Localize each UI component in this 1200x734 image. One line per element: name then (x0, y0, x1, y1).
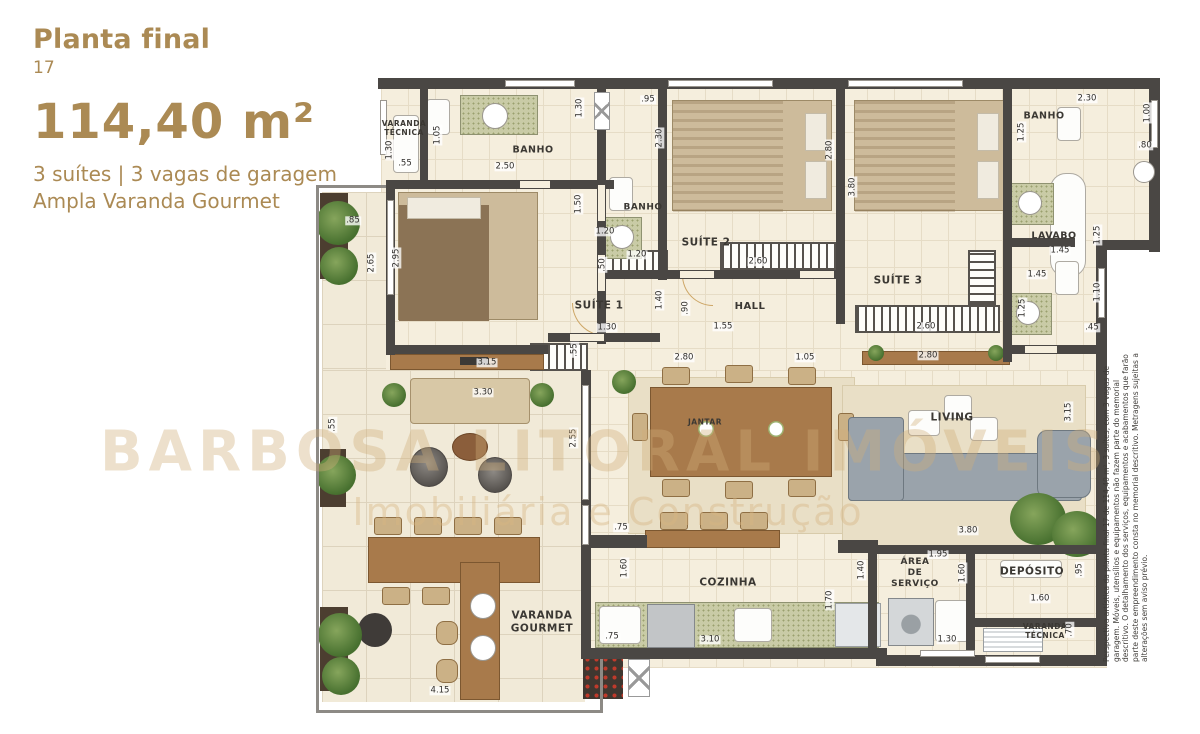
washing-machine (888, 598, 934, 646)
dimension-label: 2.65 (367, 253, 376, 274)
breakfast-bar (645, 530, 780, 548)
dimension-label: 1.45 (1027, 270, 1048, 279)
room-label-suite-1: SUÍTE 1 (575, 300, 624, 313)
plant (612, 370, 636, 394)
room-label-deposito: DEPÓSITO (1000, 566, 1064, 579)
door-opening (800, 271, 834, 278)
dimension-label: 3.15 (1064, 402, 1073, 423)
sofa-chaise (848, 417, 904, 501)
balcony-sofa (410, 378, 530, 424)
side-table (452, 433, 488, 461)
room-label-varanda-gourmet: VARANDA GOURMET (511, 609, 573, 634)
dining-chair (788, 367, 816, 385)
window (848, 80, 963, 87)
dining-chair (662, 479, 690, 497)
dimension-label: 1.05 (795, 353, 816, 362)
room-label-banho-suite2: BANHO (623, 203, 662, 214)
room-label-cozinha: COZINHA (699, 577, 756, 590)
sliding-door (582, 385, 589, 500)
dimension-label: 1.30 (385, 140, 394, 161)
room-label-suite-2: SUÍTE 2 (682, 237, 731, 250)
bar-chair (700, 512, 728, 530)
features-line2: Ampla Varanda Gourmet (33, 189, 337, 213)
dimension-label: 2.55 (569, 428, 578, 449)
dimension-label: .95 (1075, 562, 1084, 578)
dining-table (650, 387, 832, 477)
page-title: Planta final (33, 24, 337, 55)
dimension-label: 2.80 (674, 353, 695, 362)
room-label-lavabo: LAVABO (1031, 230, 1076, 241)
bed-pillow (977, 161, 999, 199)
stove (647, 604, 695, 648)
kitchen-sink (734, 608, 772, 642)
plant (318, 613, 362, 657)
dimension-label: .95 (640, 95, 656, 104)
balcony-railing (600, 658, 603, 713)
bar-chair (374, 517, 402, 535)
window (668, 80, 773, 87)
wall (836, 78, 845, 324)
dimension-label: .55 (397, 159, 413, 168)
features-line1: 3 suítes | 3 vagas de garagem (33, 162, 337, 186)
dimension-label: 1.60 (1030, 594, 1051, 603)
bar-stool (436, 621, 458, 645)
round-table (358, 613, 392, 647)
dimension-label: 1.70 (825, 590, 834, 611)
wall (548, 333, 660, 342)
plant (382, 383, 406, 407)
dimension-label: 1.00 (1143, 103, 1152, 124)
dimension-label: 1.50 (574, 194, 583, 215)
plant (322, 657, 360, 695)
dimension-label: 1.20 (595, 227, 616, 236)
dimension-label: 1.20 (627, 250, 648, 259)
dimension-label: .75 (613, 523, 629, 532)
dimension-label: 1.45 (1050, 246, 1071, 255)
bed-pillow (977, 113, 999, 151)
sink-icon (470, 593, 496, 619)
dimension-label: 1.25 (1093, 225, 1102, 246)
dimension-label: 1.30 (937, 635, 958, 644)
balcony-railing (316, 185, 319, 713)
room-label-varanda-tecnica-bottom: VARANDA TÉCNICA (1023, 622, 1068, 640)
dimension-label: .50 (598, 257, 607, 273)
dimension-label: 3.10 (700, 635, 721, 644)
dimension-label: 2.30 (655, 128, 664, 149)
bed-suite1 (398, 192, 538, 320)
dimension-label: 2.60 (916, 322, 937, 331)
sink-icon (1018, 191, 1042, 215)
dining-chair (725, 481, 753, 499)
round-chair (478, 457, 512, 493)
bar-chair (494, 517, 522, 535)
service-hatch (628, 659, 650, 697)
door-opening (1025, 346, 1057, 353)
plant (868, 345, 884, 361)
bar-stool (436, 659, 458, 683)
bed-pillow (805, 161, 827, 199)
dimension-label: 1.30 (575, 98, 584, 119)
dimension-label: 2.80 (825, 140, 834, 161)
dimension-label: 1.55 (713, 322, 734, 331)
dining-chair (788, 479, 816, 497)
flower-decor (768, 421, 784, 437)
plant (530, 383, 554, 407)
dimension-label: 1.30 (597, 323, 618, 332)
room-label-suite-3: SUÍTE 3 (874, 275, 923, 288)
dimension-label: 1.95 (928, 550, 949, 559)
bar-chair (414, 517, 442, 535)
round-chair (410, 447, 448, 487)
dimension-label: 3.80 (958, 526, 979, 535)
bed-suite2 (672, 100, 832, 211)
dimension-label: 1.05 (433, 125, 442, 146)
window (985, 656, 1040, 663)
wall (868, 545, 1107, 554)
dimension-label: .55 (328, 417, 337, 433)
dimension-label: .45 (1084, 323, 1100, 332)
floor-plan: VARANDA TÉCNICABANHOBANHOSUÍTE 2SUÍTE 3S… (310, 65, 1170, 725)
closet (968, 250, 996, 305)
shower-box (594, 92, 610, 130)
dimension-label: .55 (570, 342, 579, 358)
sink-icon (1133, 161, 1155, 183)
wall (581, 648, 887, 659)
dimension-label: 2.60 (748, 257, 769, 266)
plant (988, 345, 1004, 361)
bed-suite3 (854, 100, 1004, 211)
room-label-banho-suite3: BANHO (1023, 110, 1064, 121)
page: Planta final 17 114,40 m² 3 suítes | 3 v… (0, 0, 1200, 734)
dimension-label: 2.80 (918, 351, 939, 360)
dimension-label: 2.50 (495, 162, 516, 171)
dimension-label: 1.40 (655, 290, 664, 311)
room-label-varanda-tecnica-top: VARANDA TÉCNICA (382, 119, 427, 137)
gourmet-counter (368, 537, 540, 583)
flower-box (583, 655, 623, 699)
dimension-label: .70 (1065, 622, 1074, 638)
bar-chair (660, 512, 688, 530)
legal-disclaimer: Perspectiva artística da planta final 17… (1102, 350, 1150, 662)
dimension-label: 3.30 (473, 388, 494, 397)
wall (386, 345, 548, 354)
wall (868, 545, 877, 659)
wall (838, 540, 878, 553)
sink-icon (482, 103, 508, 129)
toilet-icon (1055, 261, 1079, 295)
dimension-label: .90 (681, 300, 690, 316)
bed-blanket (855, 101, 955, 212)
bar-chair (382, 587, 410, 605)
dining-chair (662, 367, 690, 385)
balcony-railing (316, 710, 603, 713)
bed-blanket (399, 205, 489, 321)
dimension-label: 1.10 (1093, 282, 1102, 303)
dining-chair (725, 365, 753, 383)
dimension-label: 3.80 (848, 177, 857, 198)
closet (720, 242, 838, 270)
gourmet-counter (460, 562, 500, 700)
room-label-living: LIVING (930, 412, 973, 425)
armchair (1037, 430, 1091, 498)
plan-number: 17 (33, 58, 337, 78)
balcony-railing (316, 185, 394, 188)
dimension-label: .85 (345, 216, 361, 225)
door-opening (570, 334, 604, 341)
wall (1003, 78, 1012, 362)
area-value: 114,40 m² (33, 94, 337, 150)
door-opening (520, 181, 550, 188)
dimension-label: 1.25 (1017, 122, 1026, 143)
window (920, 650, 975, 657)
door-opening (680, 271, 714, 278)
dimension-label: 4.15 (430, 686, 451, 695)
room-label-jantar: JANTAR (688, 418, 722, 427)
dimension-label: 1.60 (620, 558, 629, 579)
sliding-door (582, 505, 589, 545)
dimension-label: 1.40 (857, 560, 866, 581)
wall (581, 535, 647, 548)
dimension-label: 1.60 (958, 563, 967, 584)
bed-blanket (673, 101, 783, 212)
dining-chair (632, 413, 648, 441)
door-opening (598, 185, 605, 221)
dimension-label: 1.25 (1018, 298, 1027, 319)
dimension-label: .80 (1137, 141, 1153, 150)
header: Planta final 17 114,40 m² 3 suítes | 3 v… (33, 24, 337, 213)
dimension-label: .75 (604, 632, 620, 641)
dimension-label: 2.95 (392, 248, 401, 269)
coffee-table (970, 417, 998, 441)
bar-chair (422, 587, 450, 605)
room-label-area-de-servico: ÁREA DE SERVIÇO (891, 557, 939, 589)
plant (316, 455, 356, 495)
sink-icon (470, 635, 496, 661)
window (505, 80, 575, 87)
wall (658, 78, 667, 280)
bar-chair (454, 517, 482, 535)
room-label-hall: HALL (735, 301, 766, 313)
bar-chair (740, 512, 768, 530)
room-label-banho-suite1: BANHO (512, 144, 553, 155)
bed-pillow (407, 197, 481, 219)
plant (320, 247, 358, 285)
dimension-label: 3.15 (477, 358, 498, 367)
dimension-label: 2.30 (1077, 94, 1098, 103)
